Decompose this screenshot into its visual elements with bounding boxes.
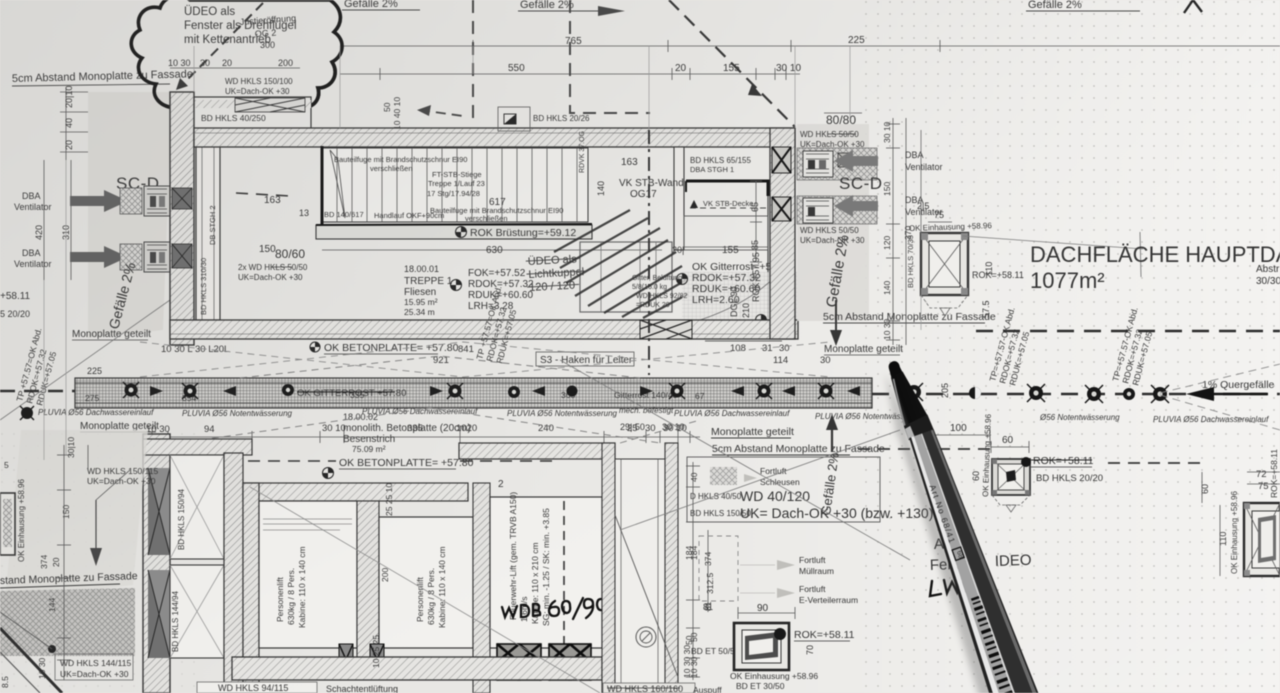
svg-text:ROK=+58.11: ROK=+58.11 [1033,455,1094,467]
svg-text:IDEO: IDEO [995,552,1032,570]
svg-text:60: 60 [971,471,981,481]
svg-text:100: 100 [950,423,967,434]
svg-text:BD HKLS 20/20: BD HKLS 20/20 [1036,473,1103,484]
svg-text:60: 60 [1002,435,1014,446]
svg-text:205: 205 [940,383,950,398]
